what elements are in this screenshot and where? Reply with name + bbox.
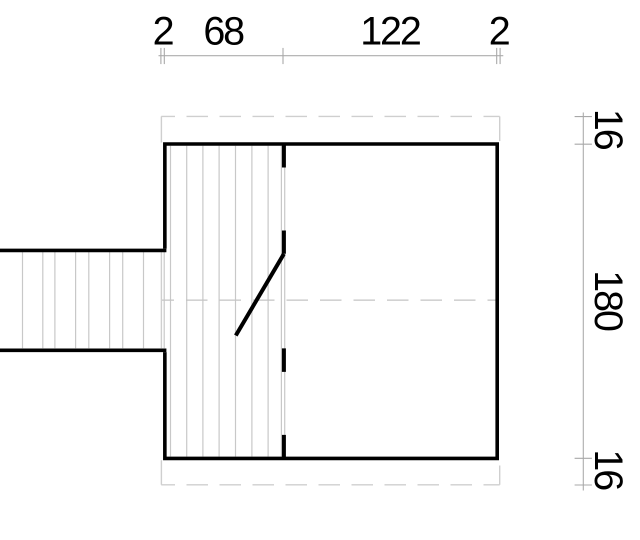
- svg-text:16: 16: [586, 109, 630, 150]
- svg-text:122: 122: [360, 10, 420, 54]
- svg-text:180: 180: [586, 270, 630, 331]
- svg-text:68: 68: [203, 10, 244, 54]
- svg-text:2: 2: [489, 10, 509, 54]
- svg-text:16: 16: [586, 449, 630, 490]
- svg-text:2: 2: [153, 10, 173, 54]
